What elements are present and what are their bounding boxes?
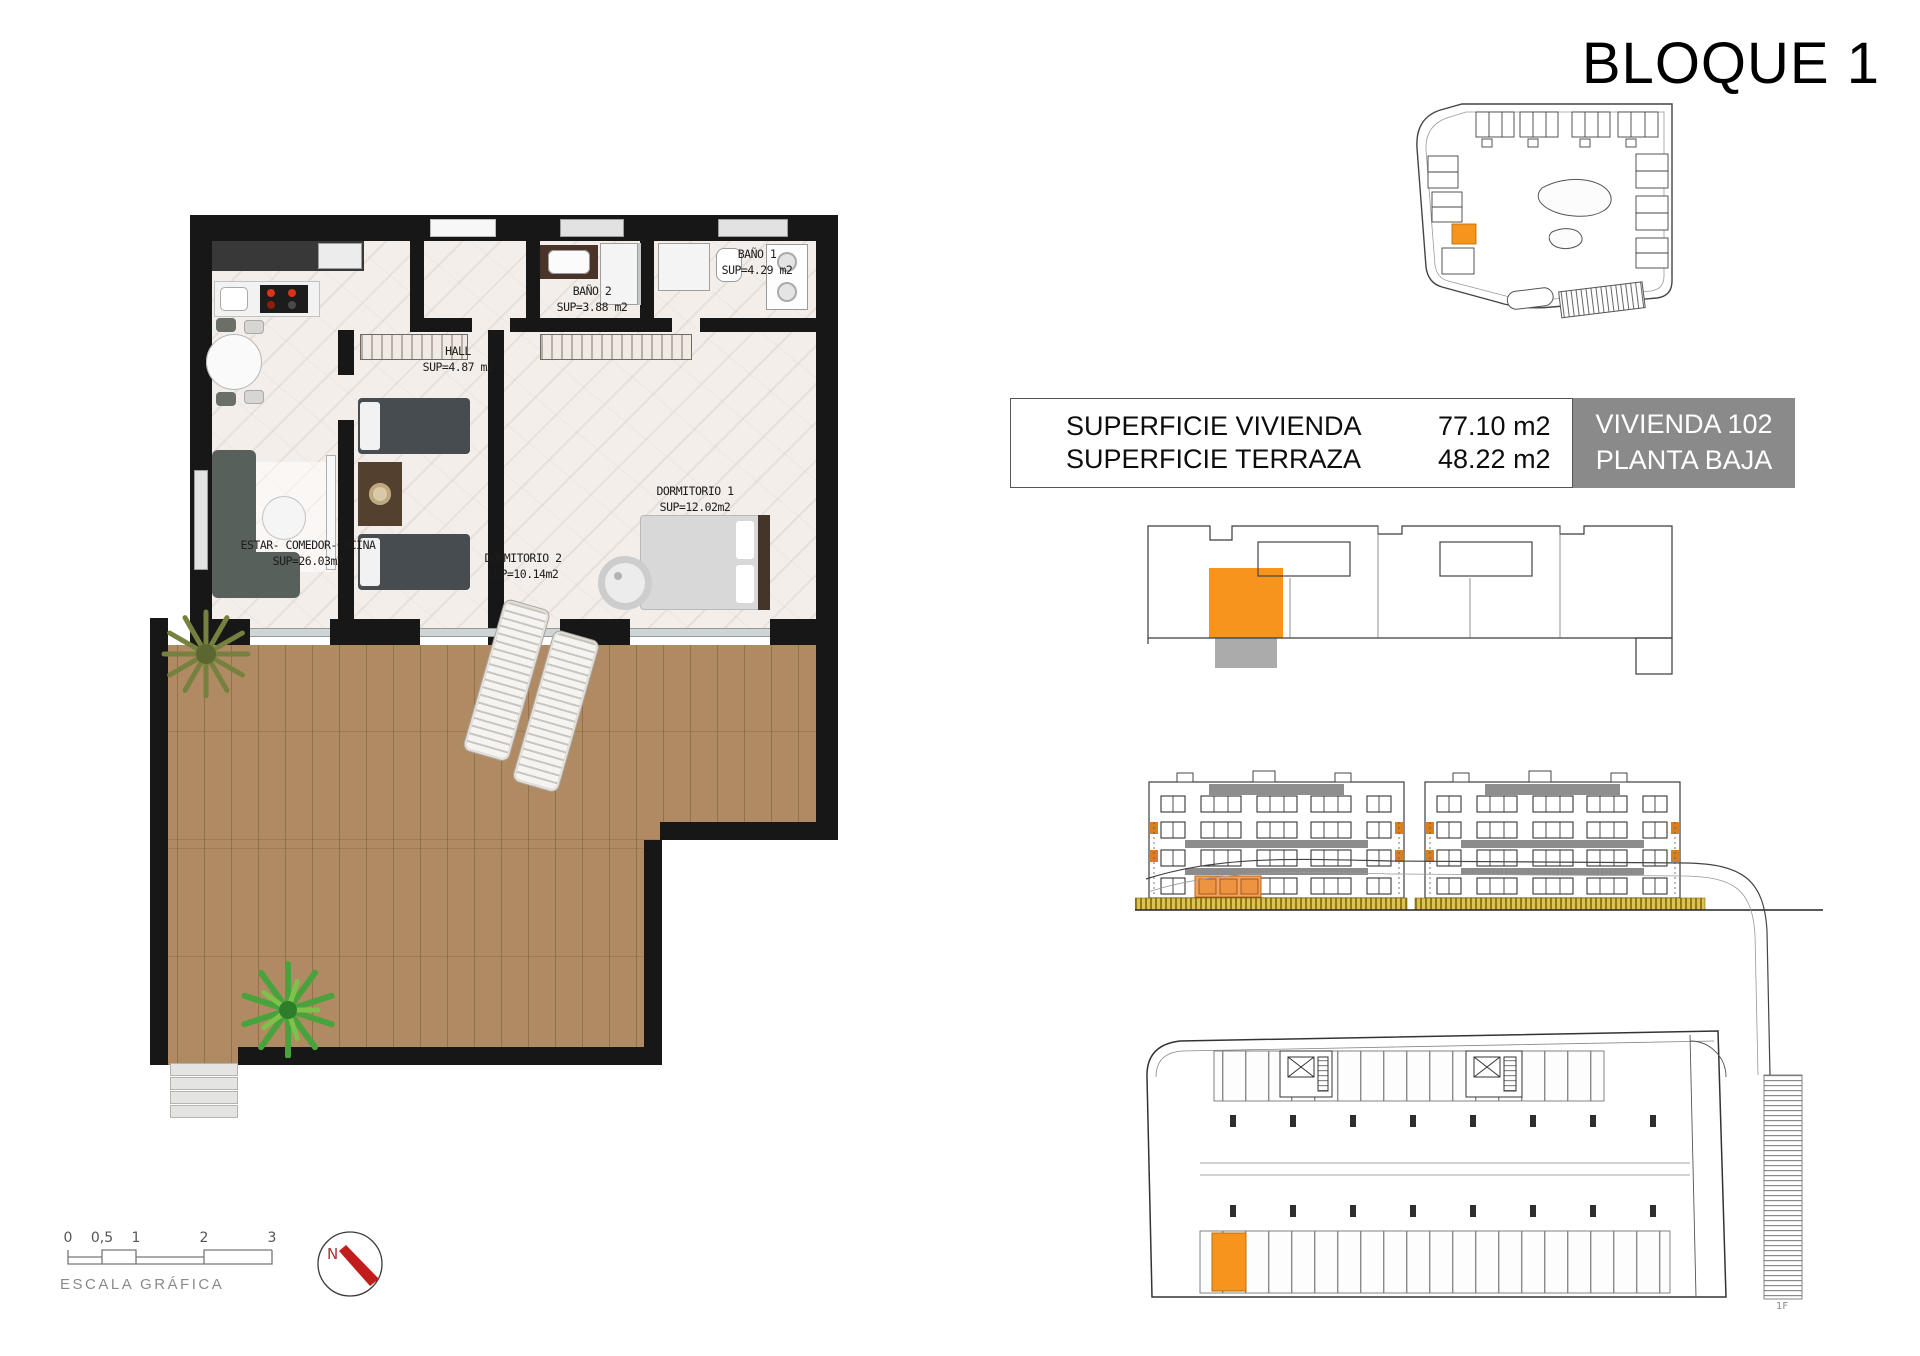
dining-chair	[216, 318, 236, 332]
room-area: SUP=4.29 m2	[722, 263, 793, 279]
wall-hall-west	[410, 241, 424, 332]
garage-footnote: 1F	[1776, 1301, 1788, 1312]
room-label-bano2: BAÑO 2 SUP=3.88 m2	[557, 284, 628, 315]
ramp-hatched-band	[1764, 1075, 1802, 1299]
bath2-window	[560, 219, 624, 237]
highlighted-terrace-section	[1215, 638, 1277, 668]
compass-north-label: N	[327, 1245, 338, 1263]
scale-bar-shape	[68, 1250, 272, 1264]
surface-label: SUPERFICIE TERRAZA	[1066, 444, 1438, 475]
burner	[267, 289, 275, 297]
lamp	[369, 483, 391, 505]
wall-terrace-b	[330, 619, 420, 645]
highlighted-parking-space	[1212, 1233, 1246, 1291]
garage-plan: 1F	[1130, 845, 1810, 1315]
section-dividers	[1290, 526, 1560, 638]
room-area: SUP=26.03m2	[241, 554, 376, 570]
svg-text:3: 3	[268, 1230, 277, 1246]
terrace-stair-step	[170, 1105, 238, 1118]
wall-terrace-d	[770, 619, 838, 645]
wall-left	[190, 215, 212, 647]
surface-info-table: SUPERFICIE VIVIENDA 77.10 m2 SUPERFICIE …	[1010, 398, 1795, 488]
dining-table	[206, 334, 262, 390]
room-area: SUP=10.14m2	[484, 567, 561, 583]
burner	[288, 301, 296, 309]
terrace-plant-green-icon	[236, 958, 340, 1058]
parking-row-bottom	[1200, 1231, 1670, 1293]
sliding-door-living	[250, 628, 330, 637]
room-name: HALL	[423, 344, 494, 360]
room-area: SUP=3.88 m2	[557, 300, 628, 316]
bath1-window	[718, 219, 788, 237]
room-area: SUP=12.02m2	[656, 500, 733, 516]
plant-center	[196, 644, 216, 664]
dining-chair	[244, 320, 264, 334]
stair-core-b	[1466, 1051, 1522, 1097]
surface-value: 77.10 m2	[1438, 411, 1551, 442]
surface-label: SUPERFICIE VIVIENDA	[1066, 411, 1438, 442]
sink	[548, 250, 590, 274]
bed-dorm2-a	[358, 398, 470, 454]
kitchen-sink	[220, 287, 248, 311]
table-row: SUPERFICIE TERRAZA 48.22 m2	[1066, 444, 1572, 475]
wall-dorm2-dorm1	[488, 330, 504, 645]
living-window	[194, 470, 208, 570]
nightstand-dorm2	[358, 462, 402, 526]
dining-chair	[216, 392, 236, 406]
wall-bath1-west	[640, 241, 654, 332]
room-name: BAÑO 2	[557, 284, 628, 300]
room-label-hall: HALL SUP=4.87 m2	[423, 344, 494, 375]
wall-living-dorm2	[338, 420, 354, 645]
pillow	[736, 565, 754, 603]
pillow	[360, 402, 380, 450]
dining-chair	[244, 390, 264, 404]
parking-row-top	[1214, 1051, 1604, 1101]
graphic-scale-bar: 0 0,5 1 2 3	[58, 1228, 298, 1272]
building-section-key	[1140, 516, 1680, 696]
scale-bar-caption: ESCALA GRÁFICA	[60, 1276, 224, 1293]
wardrobe-dorm1	[540, 334, 692, 360]
wall-bath-south-c	[700, 318, 816, 332]
svg-text:0: 0	[64, 1230, 73, 1246]
terrace-plant-olive-icon	[160, 606, 252, 698]
cooktop	[260, 285, 308, 313]
entry-door	[430, 219, 496, 237]
site-units-right	[1636, 154, 1668, 268]
burner	[288, 289, 296, 297]
room-area: SUP=4.87 m2	[423, 360, 494, 376]
svg-text:0,5: 0,5	[91, 1230, 113, 1246]
room-label-dormitorio1: DORMITORIO 1 SUP=12.02m2	[656, 484, 733, 515]
room-name: DORMITORIO 2	[484, 551, 561, 567]
plan-sheet: BAÑO 1 SUP=4.29 m2 BAÑO 2 SUP=3.88 m2 HA…	[0, 0, 1920, 1356]
terrace-wall-step	[660, 822, 838, 840]
terrace-stair-step	[170, 1091, 238, 1104]
terrace-stair-step	[170, 1063, 238, 1076]
room-name: BAÑO 1	[722, 247, 793, 263]
pillow	[736, 521, 754, 559]
svg-text:2: 2	[200, 1230, 209, 1246]
fridge	[318, 243, 362, 269]
scale-tick-labels: 0 0,5 1 2 3	[64, 1230, 277, 1246]
washer-drum	[777, 282, 797, 302]
plant-center	[279, 1001, 297, 1019]
shower-bath1	[658, 243, 710, 291]
wall-living-dorm2-upper	[338, 330, 354, 375]
terrace-wall-bottom-a	[150, 1047, 168, 1065]
highlighted-unit-marker	[1452, 224, 1476, 244]
unit-id-box: VIVIENDA 102 PLANTA BAJA	[1573, 398, 1795, 488]
page-title: BLOQUE 1	[1400, 30, 1880, 97]
coffee-table	[262, 496, 306, 540]
unit-floor: PLANTA BAJA	[1596, 443, 1773, 479]
unit-name: VIVIENDA 102	[1595, 407, 1772, 443]
wall-bath2-west	[526, 241, 540, 318]
svg-text:1: 1	[132, 1230, 141, 1246]
highlighted-unit-section	[1209, 568, 1283, 638]
terrace-stair-step	[170, 1077, 238, 1090]
terrace-wall-right-lower	[644, 840, 662, 1065]
pouf	[598, 556, 652, 610]
burner	[267, 301, 275, 309]
room-label-bano1: BAÑO 1 SUP=4.29 m2	[722, 247, 793, 278]
surface-rows: SUPERFICIE VIVIENDA 77.10 m2 SUPERFICIE …	[1010, 398, 1573, 488]
pouf-center	[614, 572, 622, 580]
room-label-dormitorio2: DORMITORIO 2 SUP=10.14m2	[484, 551, 561, 582]
headboard	[758, 515, 770, 610]
compass-circle	[318, 1232, 382, 1296]
bed-dorm1	[640, 515, 770, 610]
site-key-plan	[1402, 96, 1710, 358]
wall-right	[816, 215, 838, 840]
vanity-bath2	[540, 245, 598, 279]
surface-value: 48.22 m2	[1438, 444, 1551, 475]
room-name: DORMITORIO 1	[656, 484, 733, 500]
terrace-deck-lower	[150, 840, 662, 1065]
north-compass: N	[312, 1226, 388, 1302]
apartment-floor-plan: BAÑO 1 SUP=4.29 m2 BAÑO 2 SUP=3.88 m2 HA…	[0, 0, 900, 1200]
table-row: SUPERFICIE VIVIENDA 77.10 m2	[1066, 411, 1572, 442]
room-label-estar: ESTAR- COMEDOR-COCINA SUP=26.03m2	[241, 538, 376, 569]
room-name: ESTAR- COMEDOR-COCINA	[241, 538, 376, 554]
stair-core-a	[1280, 1051, 1332, 1097]
